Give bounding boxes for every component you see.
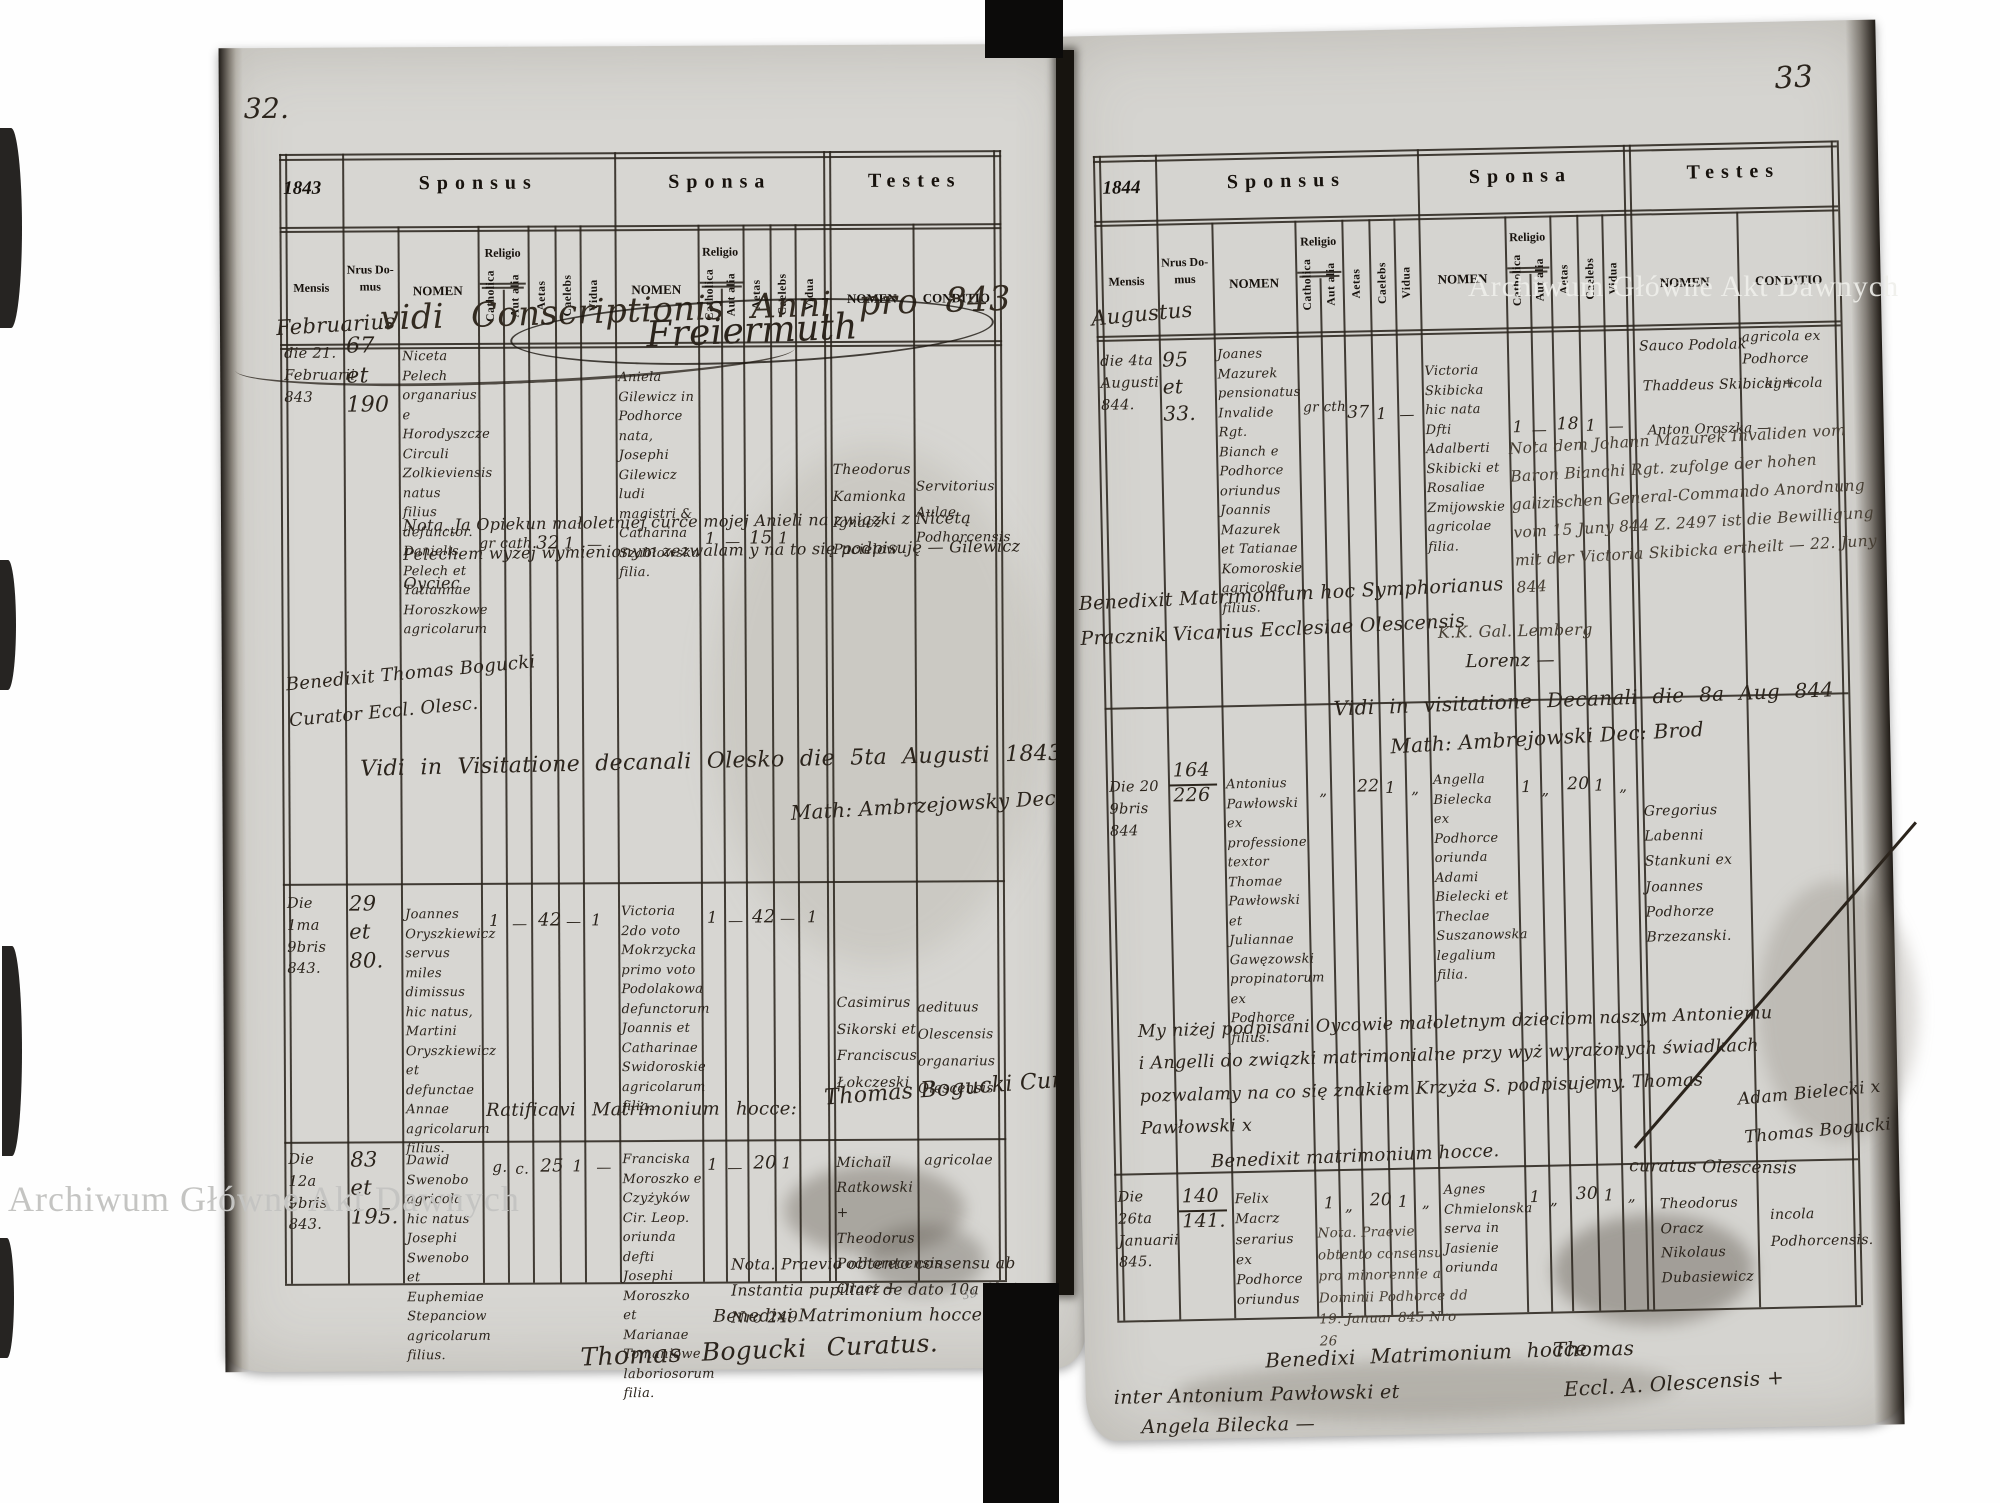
sponsus-religio: gr cth [1303,397,1346,418]
sponsus-caelebs: — [566,910,581,933]
parental-consent-note: My niżej podpisani Oycowie małoletnym dz… [1137,997,1781,1145]
grid-line [1601,214,1626,1310]
sponsa-aetas: 20 [753,1149,777,1176]
grid-line [1094,205,1838,223]
column-header-nomen-sponsus: NOMEN [1212,274,1295,294]
column-header-aut-alia-sponsus: Aut alia [1319,241,1344,326]
sponsus-caelebs: 1 [1398,1190,1409,1214]
sponsus-aetas: 37 [1347,400,1370,426]
sponsus-aut-alia: „ [1345,1195,1354,1218]
house-number: 140 141. [1181,1184,1218,1234]
sponsus-catholica: 1 [489,909,500,933]
sponsus-vidua: 1 [591,908,602,932]
binding-edge-mark [0,1238,14,1358]
grid-line [1504,216,1529,1312]
grid-line [721,289,728,1282]
benediction-line: inter Antonium Pawłowski et [1114,1378,1400,1412]
sponsus-vidua: — [596,1156,611,1179]
grid-line [1117,1305,1861,1323]
benediction-line: Angela Bilecka — [1141,1410,1315,1442]
sponsa-aut-alia: — [727,1157,742,1180]
archive-watermark: Archiwum Główne Akt Dawnych [1468,270,1899,304]
curate-title: curatus Olescensis [1629,1154,1797,1182]
column-header-nrus-domus: Nrus Do- mus [1157,254,1213,289]
testes-conditio: agricolae [924,1150,1002,1171]
guardian-consent-note: Nota. Ja Opiekun małoletniej curce mojej… [403,503,1024,598]
column-header-mensis: Mensis [1095,273,1157,291]
column-header-mensis: Mensis [280,280,343,297]
sponsus-vidua: „ [1411,777,1420,800]
sponsus-religio-g: g. [492,1156,507,1179]
year-label: 1844 [1102,177,1140,200]
testis-name: Sauco Podolak [1639,334,1747,357]
grid-line [284,1138,1006,1144]
archive-watermark: Archiwum Główne Akt Dawnych [8,1178,520,1220]
house-number: 164 226 [1173,758,1210,808]
house-number: 95 et 33. [1162,346,1214,428]
sponsa-catholica: 1 [707,1153,718,1177]
sponsa-vidua: 1 [807,905,818,929]
record-date: die 4ta Augusti 844. [1100,351,1159,417]
sponsa-aut-alia: „ [1541,779,1550,802]
sponsus-aetas: 42 [538,906,562,933]
column-header-testes: Testes [1629,158,1837,185]
sponsus-catholica: 1 [1324,1191,1335,1215]
page-gutter-shadow [1056,50,1074,1295]
page-number: 33 [1773,54,1814,101]
record-date: Die 26ta Januarii 845. [1117,1186,1177,1274]
grid-line [503,290,510,1283]
grid-line [1576,215,1601,1311]
right-page: 33 1844 Sponsus Sponsa Testes Mensis Nru… [1057,20,1904,1442]
sponsa-aut-alia: — [728,910,743,933]
sponsa-caelebs: 1 [1594,773,1605,797]
binding-edge-mark [0,560,16,690]
sponsa-caelebs: 1 [781,1151,792,1175]
column-header-caelebs-sponsus: Caelebs [1369,240,1396,326]
house-number: 29 et 80. [349,889,397,974]
column-header-sponsus: Sponsus [342,171,614,195]
pencil-mark: 33 [961,1285,979,1304]
grid-line [279,155,1001,161]
testes-names: Theodorus Oracz Nikolaus Dubasiewicz [1660,1190,1757,1290]
house-number: 67 et 190 [346,331,394,420]
sponsa-name: Agnes Chmielonska serva in Jasienie oriu… [1443,1179,1517,1278]
sponsa-aetas: 30 [1575,1182,1598,1208]
sponsa-catholica: 1 [1530,1185,1541,1209]
column-header-testes: Testes [830,169,999,193]
sponsus-name: Joannes Oryszkiewicz servus miles dimiss… [405,905,480,1159]
official-signature: Lorenz — [1465,646,1555,675]
year-label: 1843 [283,178,321,200]
sponsus-religio-c: c. [515,1158,529,1181]
page-number: 32. [244,88,290,130]
testes-conditio: agricola ex Podhorce [1742,325,1838,370]
column-header-catholica-sponsus: Catholica [1295,241,1321,326]
testes-conditio: incola Podhorcensis. [1770,1200,1871,1255]
sponsa-catholica: 1 [707,906,718,930]
bookmark-ribbon-top [985,0,1063,58]
record-date: Die 20 9bris 844 [1109,777,1168,843]
binding-edge-mark [2,946,22,1156]
sponsus-caelebs: 1 [1385,776,1396,800]
grid-line [283,880,1005,886]
curate-signature: Thomas [1553,1333,1635,1365]
sponsa-aut-alia: „ [1550,1188,1559,1211]
column-header-sponsa: Sponsa [1417,163,1623,190]
binding-edge-mark [0,128,22,328]
sponsus-aut-alia: — [512,913,527,936]
inspector-signature: Freiermuth [645,300,858,362]
sponsus-name: Antonius Pawłowski ex professione textor… [1226,774,1310,1049]
testes-names: Gregorius Labenni Stankuni ex Joannes Po… [1643,797,1754,950]
sponsa-name: Angella Bielecka ex Podhorce oriunda Ada… [1433,769,1513,985]
sponsus-vidua: — [1399,403,1415,426]
column-header-vidua-sponsus: Vidua [1394,239,1421,325]
sponsa-name: Victoria Skibicka hic nata Dfti Adalbert… [1424,361,1504,558]
column-header-sponsa: Sponsa [614,170,825,194]
sponsa-catholica: 1 [1521,775,1532,799]
sponsus-caelebs: 1 [572,1154,583,1178]
sponsus-name: Felix Macrz serarius ex Podhorce oriundu… [1235,1188,1308,1311]
office-line: K.K. Gal. Lemberg [1438,618,1593,645]
sponsus-aetas: 22 [1357,774,1380,800]
grid-line [1549,215,1574,1311]
sponsus-catholica: „ [1319,779,1328,802]
sponsa-vidua: „ [1628,1185,1637,1208]
sponsa-aetas: 20 [1567,772,1590,798]
sponsus-aetas: 25 [540,1152,564,1179]
column-header-aetas-sponsus: Aetas [1342,240,1371,326]
sponsus-aetas: 20 [1370,1188,1393,1214]
register-scan: 32. 1843 Sponsus Sponsa Testes Mensis Nr… [0,0,2000,1503]
ratification-note: Ratificavi Matrimonium hocce: [486,1095,797,1124]
testes-conditio: agricola [1765,373,1823,394]
sponsa-vidua: „ [1619,775,1628,798]
sponsus-caelebs: 1 [1376,402,1387,426]
sponsus-vidua: „ [1422,1191,1431,1214]
sponsa-aetas: 42 [752,903,776,930]
record-date: Die 1ma 9bris 843. [287,894,343,981]
sponsa-caelebs: — [780,907,795,930]
column-header-nrus-domus: Nrus Do- mus [343,261,398,295]
military-consent-note: Nota dem Johann Mazurek Invaliden vom Ba… [1508,415,1887,603]
sponsa-caelebs: 1 [1604,1183,1615,1207]
benediction-line: Benedixi Matrimonium hocce: [713,1302,988,1330]
left-page: 32. 1843 Sponsus Sponsa Testes Mensis Nr… [219,44,1086,1372]
bookmark-ribbon-bottom [983,1283,1059,1503]
sponsa-name: Victoria 2do voto Mokrzycka primo voto P… [621,902,704,1117]
record-date: die 21. Februarii 843 [284,344,342,410]
